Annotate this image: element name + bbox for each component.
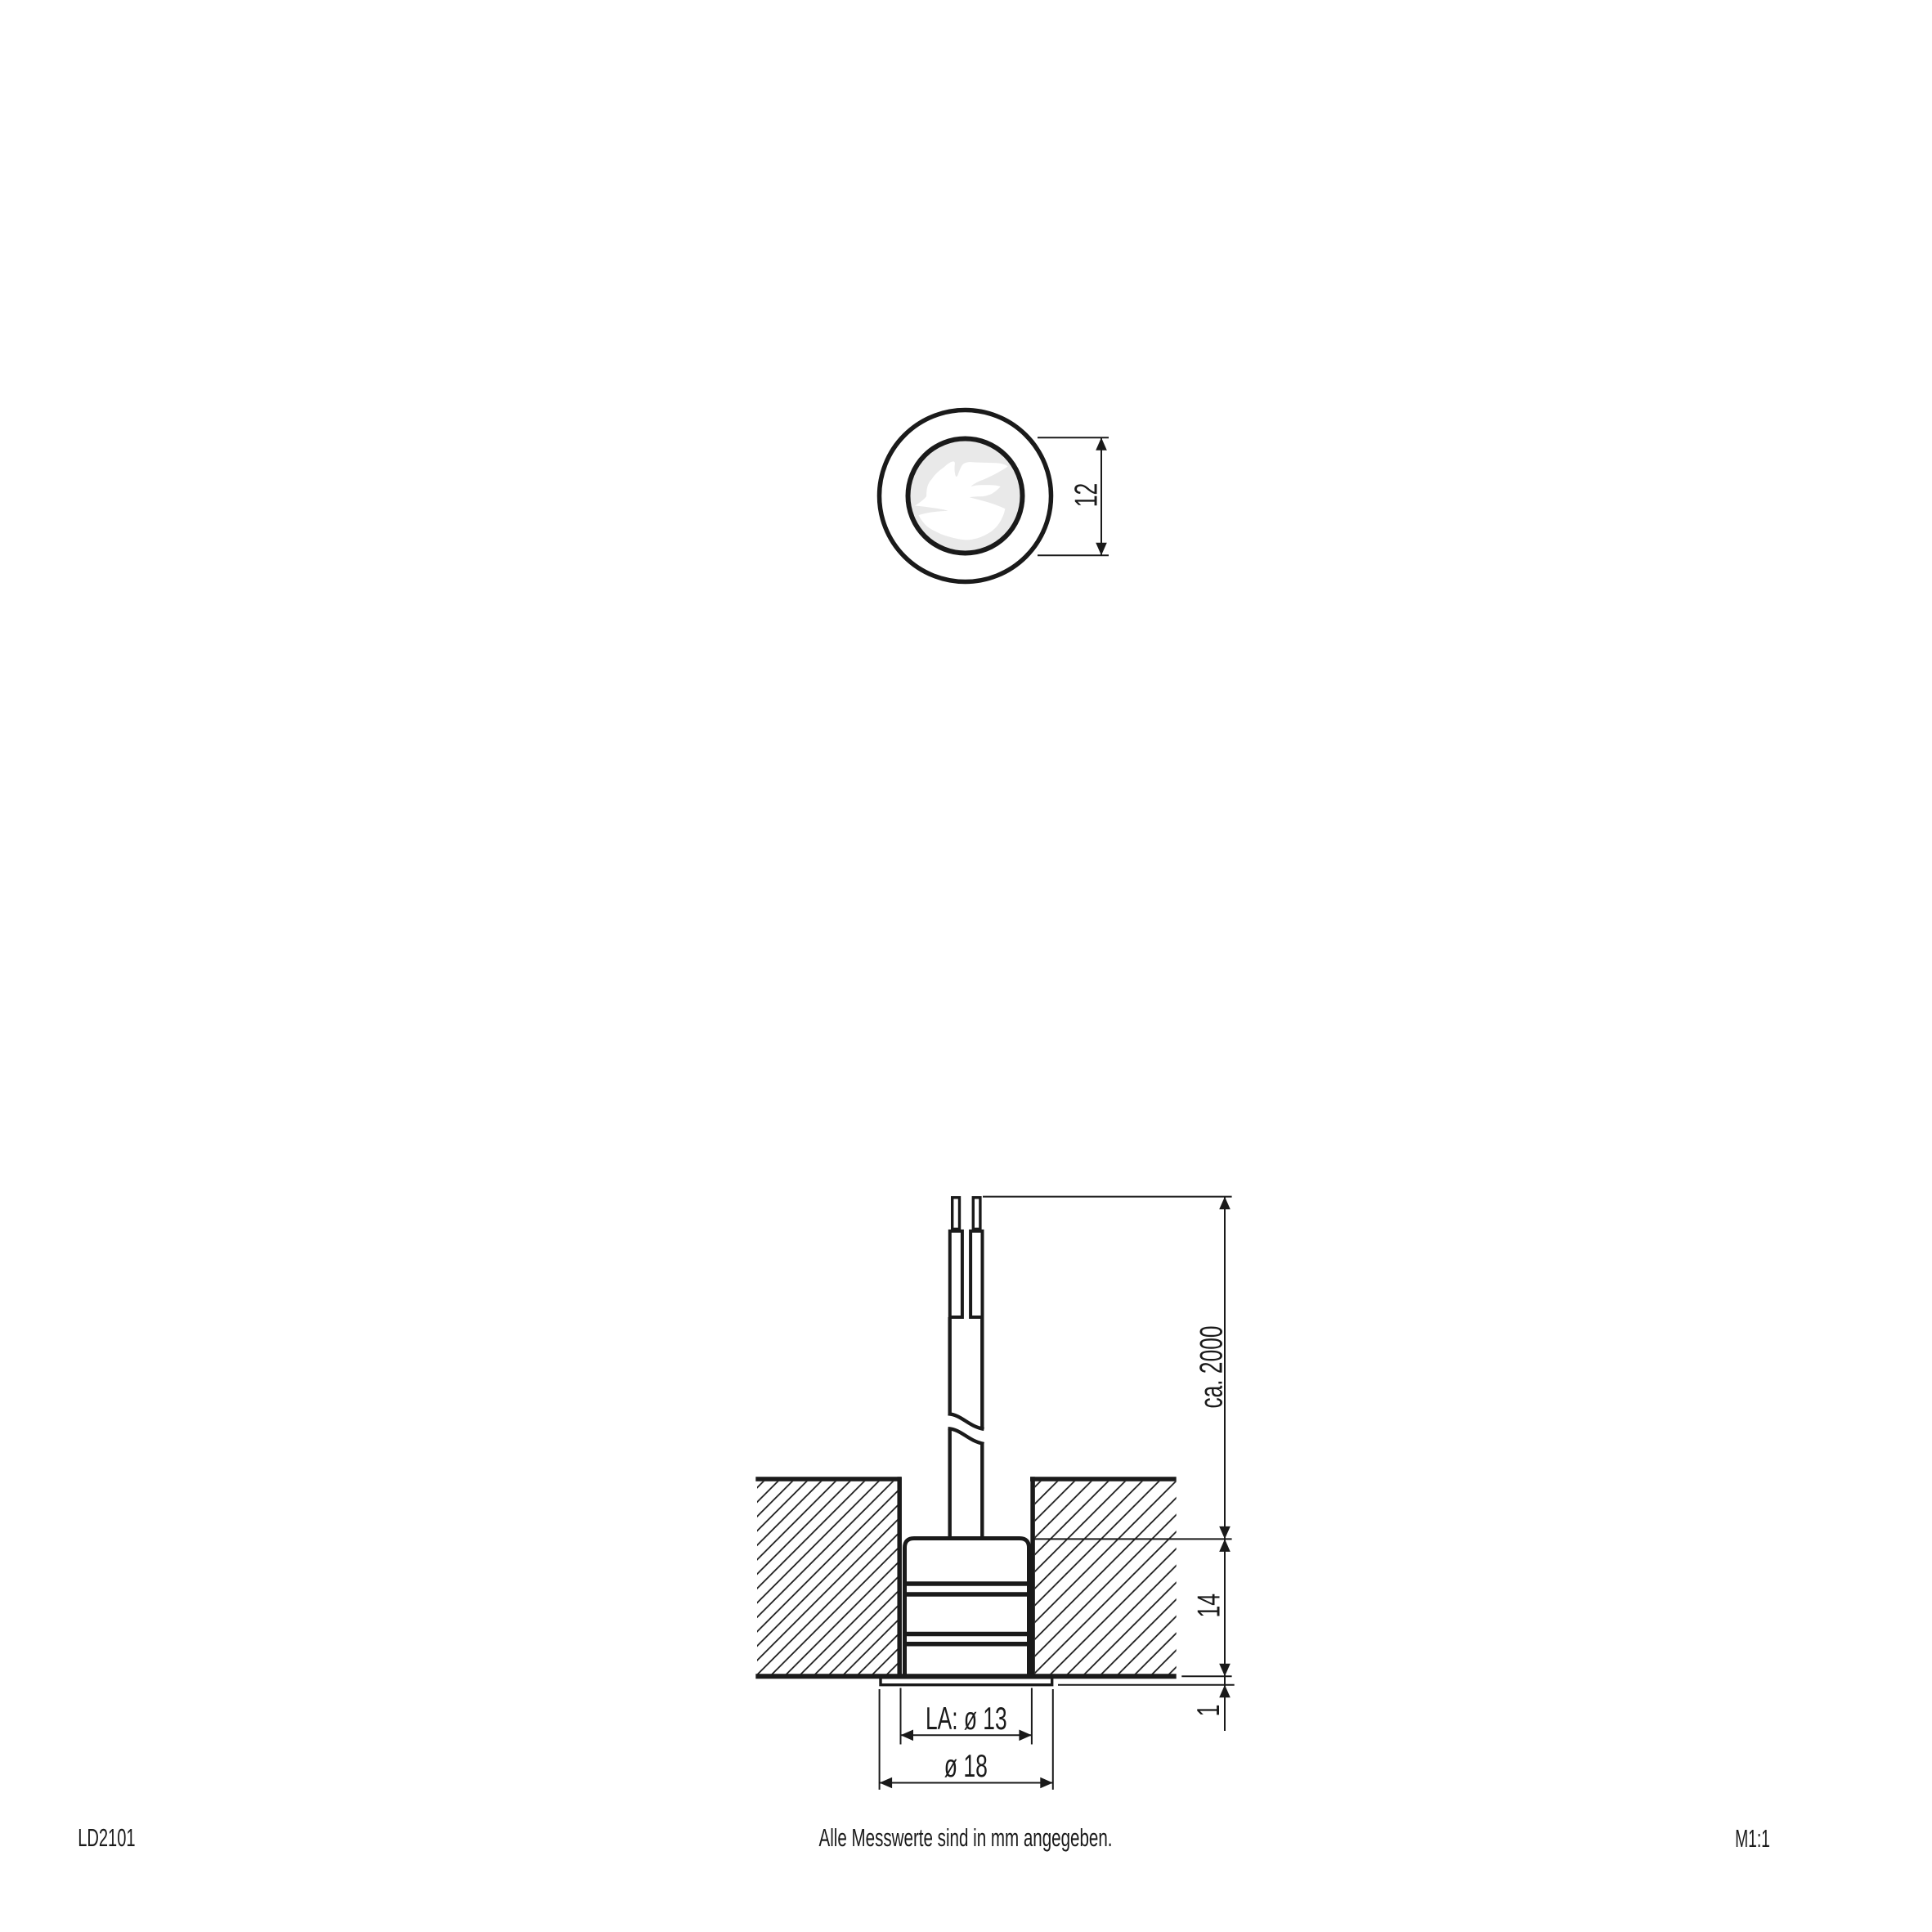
svg-text:Alle Messwerte sind in mm ange: Alle Messwerte sind in mm angegeben. <box>819 1823 1113 1852</box>
svg-text:LD2101: LD2101 <box>78 1823 135 1852</box>
svg-text:ø 18: ø 18 <box>944 1749 988 1784</box>
svg-text:12: 12 <box>1069 483 1105 508</box>
svg-text:1: 1 <box>1191 1705 1226 1717</box>
svg-text:ca. 2000: ca. 2000 <box>1195 1326 1230 1409</box>
svg-text:14: 14 <box>1192 1594 1227 1618</box>
svg-text:LA: ø 13: LA: ø 13 <box>926 1701 1007 1737</box>
svg-text:M1:1: M1:1 <box>1735 1824 1770 1853</box>
